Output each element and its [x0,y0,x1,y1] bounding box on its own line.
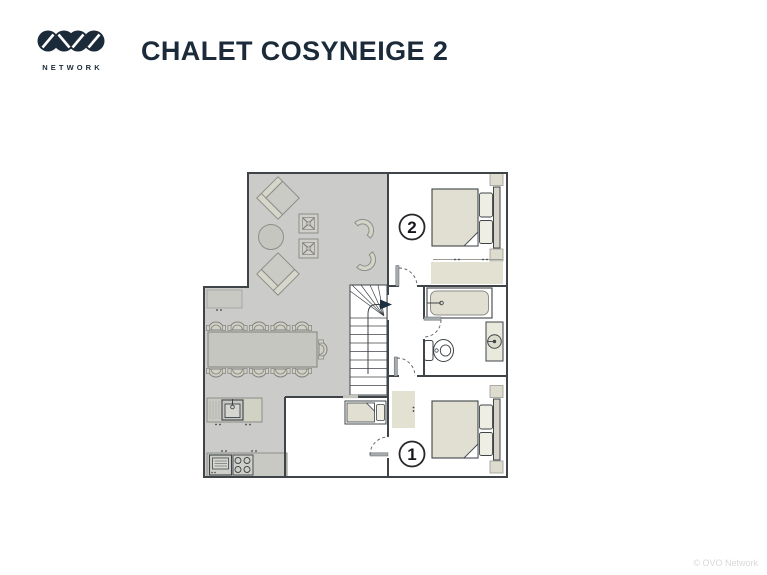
cross-stool-1 [299,214,318,233]
washbasin [486,322,503,361]
dining-table [208,332,317,367]
bedroom2-door [396,266,417,287]
copyright-note: © OVO Network [693,558,758,568]
single-bed [345,401,386,424]
round-coffee-table [259,225,284,250]
bedroom2-number: 2 [407,218,416,237]
bathroom-door [424,317,441,337]
bedroom1-bed [432,386,503,474]
floorplan: 2 1 [0,0,767,575]
bathtub [427,288,492,318]
bedroom1-wardrobe [392,391,415,428]
page: NETWORK CHALET COSYNEIGE 2 [0,0,767,575]
bedroom1-number: 1 [407,445,416,464]
cased-opening-jamb [343,395,358,398]
toilet [425,340,454,362]
bedroom2-label: 2 [400,215,425,240]
kitchen-sink-counter [207,398,262,425]
bedroom1-label: 1 [400,442,425,467]
hall-south-door [394,357,415,376]
sideboard [207,290,242,311]
bedroom2-wardrobe [431,259,503,284]
staircase [350,285,392,395]
stove-counter [207,450,287,477]
cross-stool-2 [299,239,318,258]
bedroom2-bed [432,174,503,262]
